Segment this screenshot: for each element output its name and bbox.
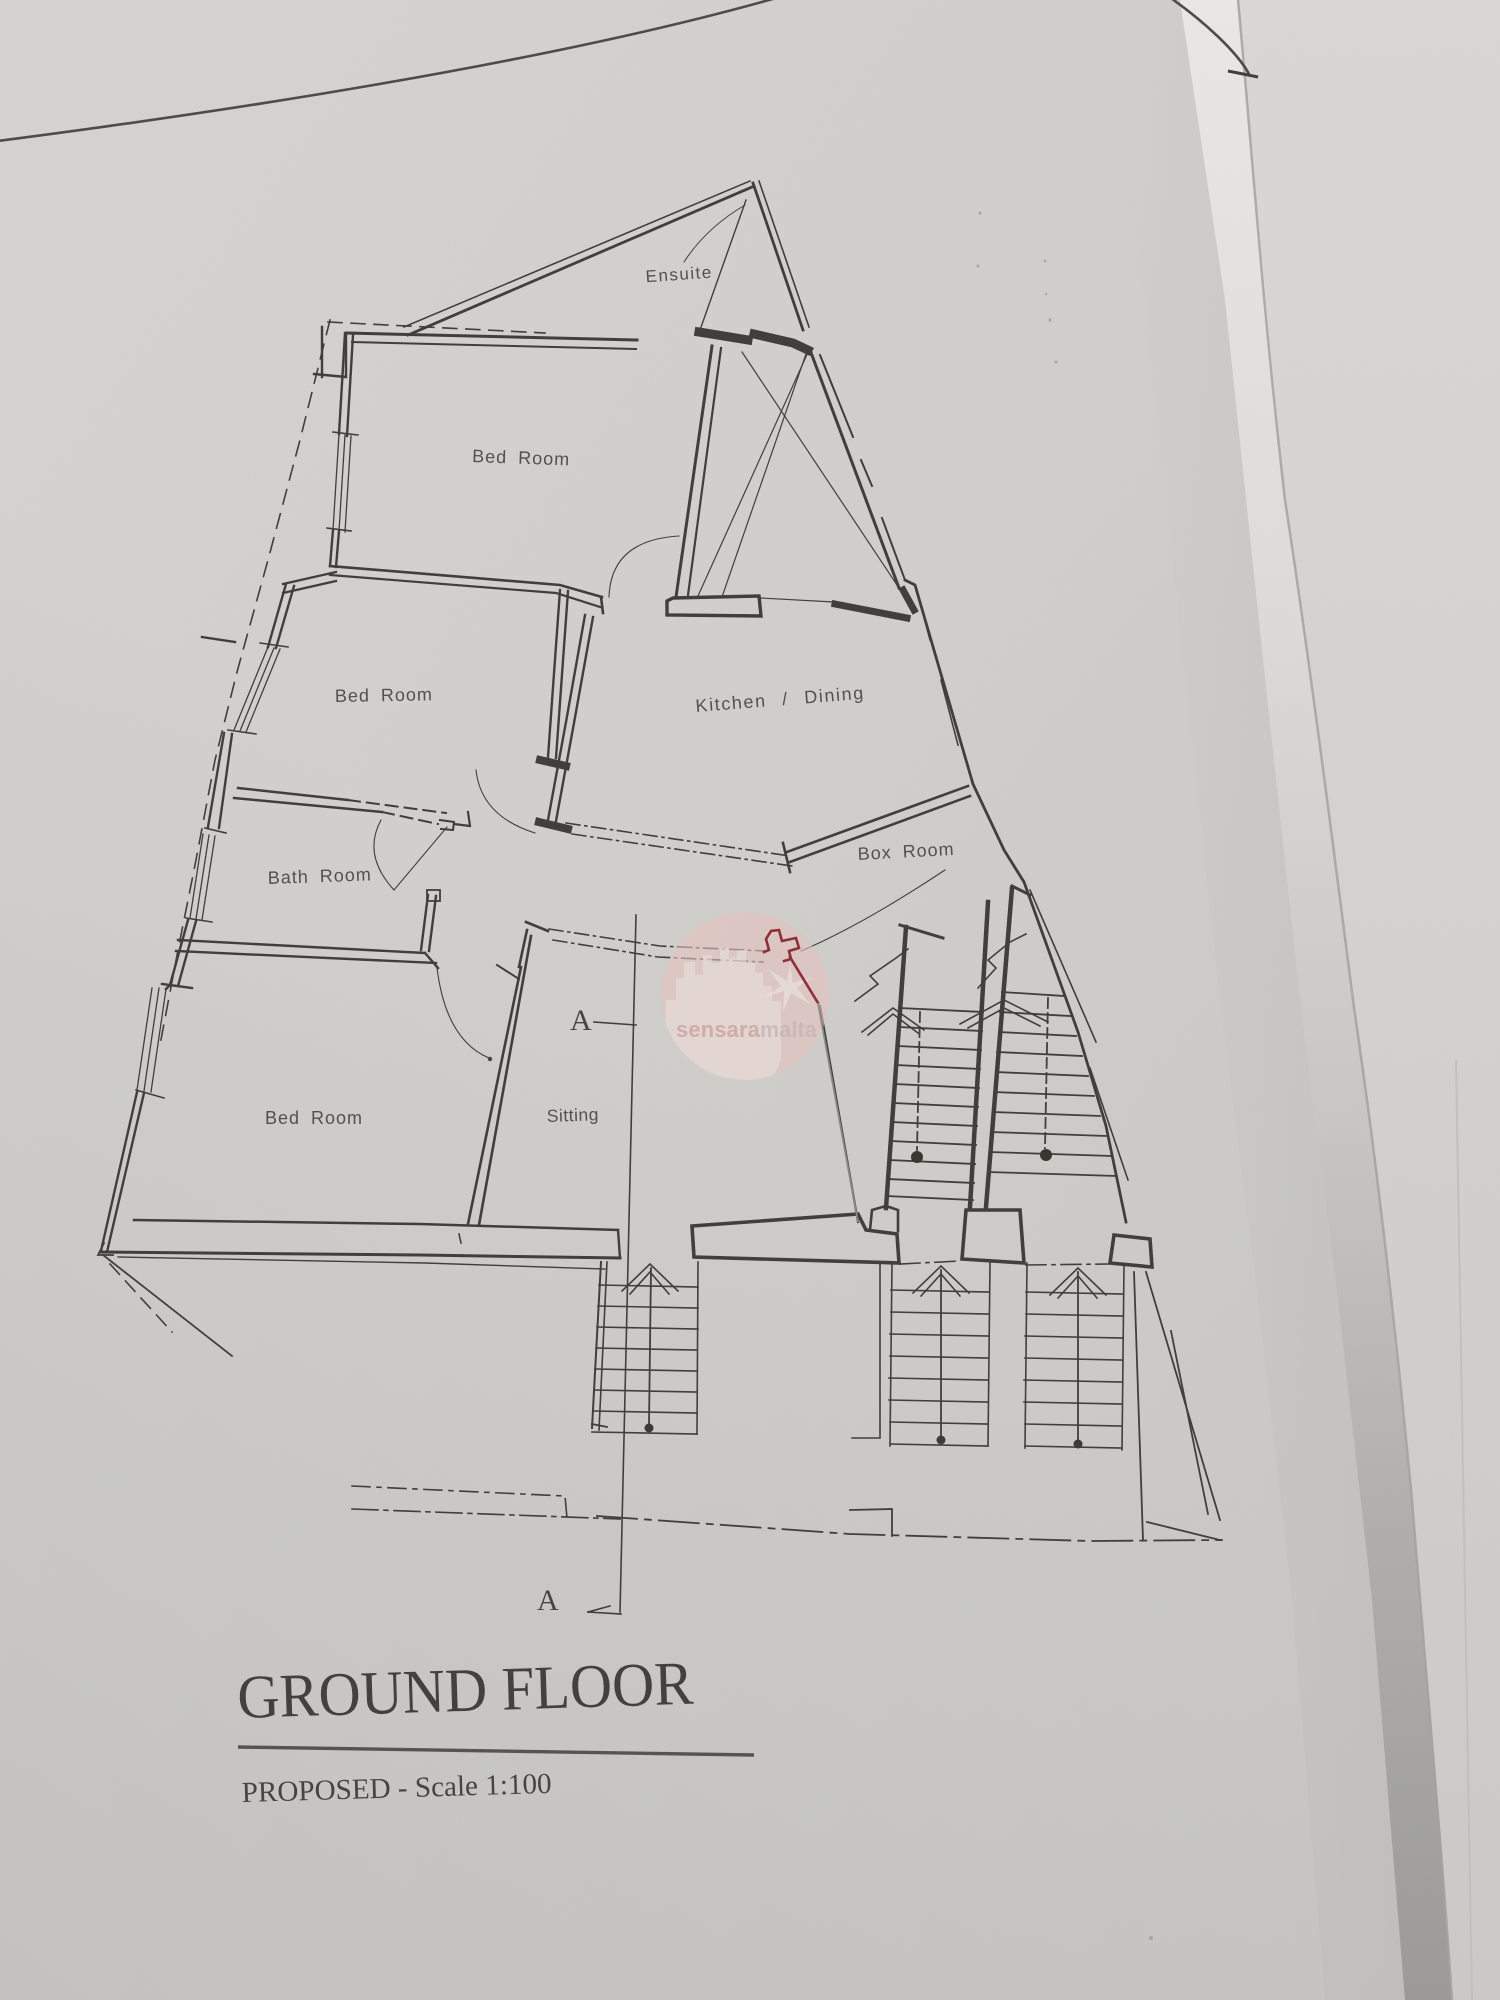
svg-text:GROUND FLOOR: GROUND FLOOR [236,1650,695,1732]
svg-text:Bath Room: Bath Room [267,864,372,888]
svg-text:Sitting: Sitting [546,1104,599,1126]
svg-text:Bed Room: Bed Room [472,446,571,469]
svg-text:sensara: sensara [676,1017,761,1042]
svg-text:A: A [570,1004,592,1037]
svg-text:Bed Room: Bed Room [335,684,433,706]
svg-text:Bed Room: Bed Room [265,1108,363,1128]
svg-text:A: A [537,1584,559,1617]
svg-text:malta: malta [760,1017,818,1042]
